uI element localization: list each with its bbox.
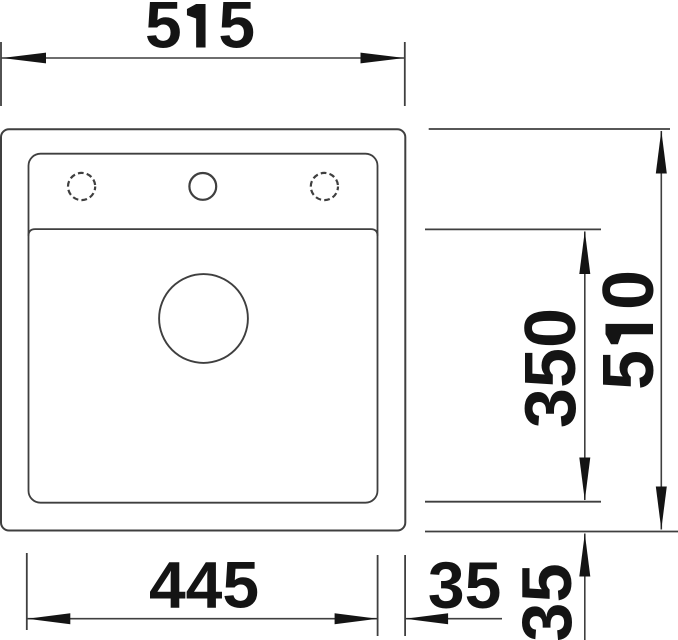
svg-text:35: 35	[428, 548, 501, 622]
svg-text:445: 445	[149, 548, 259, 622]
svg-text:5: 5	[145, 0, 182, 62]
svg-text:5: 5	[218, 0, 255, 62]
svg-text:350: 350	[511, 308, 591, 428]
svg-text:35: 35	[507, 563, 586, 640]
svg-text:0: 0	[589, 270, 669, 310]
svg-text:5: 5	[589, 350, 669, 390]
